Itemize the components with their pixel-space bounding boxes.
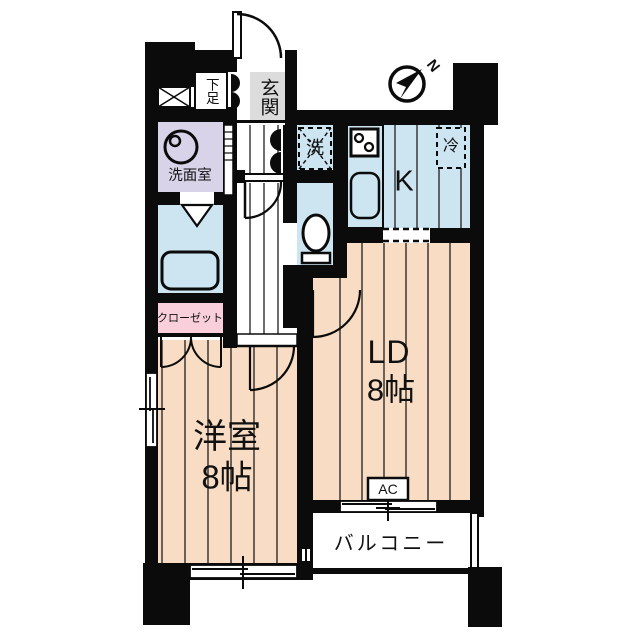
kitchen-label: K: [394, 168, 413, 197]
washer-label: 洗: [306, 139, 324, 157]
floor-plan: 玄関 下足 洗面室 洗 冷 K クローゼット LD 8帖 洋室 8帖 バルコニー…: [0, 0, 640, 640]
stove-icon: [351, 129, 378, 156]
kitchen-counter: [347, 125, 383, 228]
western-room-label: 洋室: [193, 420, 261, 454]
living-dining-label: LD: [368, 336, 411, 368]
living-dining-floor: [347, 243, 470, 500]
balcony-label: バルコニー: [334, 534, 449, 554]
compass-icon: [390, 67, 424, 101]
western-room-size: 8帖: [201, 461, 252, 494]
kitchen-opening: [383, 228, 430, 243]
refrigerator-label: 冷: [443, 139, 459, 155]
folding-door-icon: [224, 125, 233, 195]
toilet-icon: [302, 215, 330, 263]
living-dining-floor-2: [313, 278, 347, 500]
living-dining-size: 8帖: [367, 375, 415, 406]
floor-plan-drawing: [0, 0, 640, 640]
air-conditioner-label: AC: [378, 482, 397, 496]
entrance-label: 玄関: [259, 78, 278, 116]
shoe-storage-label: 下足: [204, 78, 218, 105]
closet-label: クローゼット: [157, 314, 223, 325]
washroom-label: 洗面室: [168, 169, 212, 184]
meter-box-icon: [158, 87, 190, 107]
